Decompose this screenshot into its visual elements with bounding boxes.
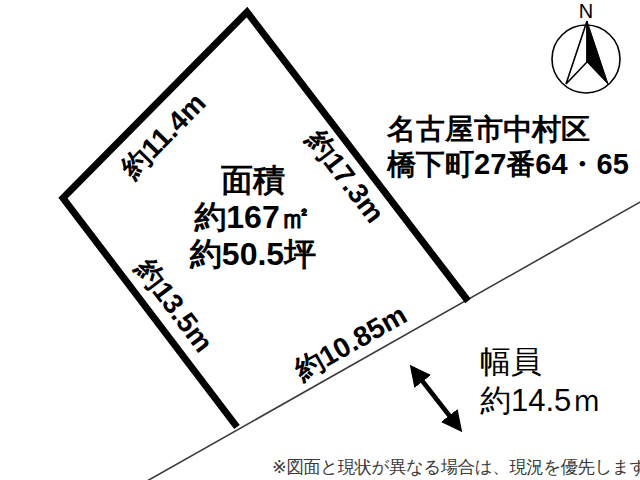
address-block: 名古屋市中村区 橋下町27番64・65 (387, 112, 629, 182)
area-tsubo: 約50.5坪 (190, 236, 316, 273)
area-block: 面積 約167㎡ 約50.5坪 (190, 162, 316, 273)
address-line1: 名古屋市中村区 (387, 112, 629, 147)
land-plot-diagram: N 約11.4m 約17.3m 約13.5m 約10.85m 面積 約167㎡ … (0, 0, 640, 480)
compass-north-label: N (579, 0, 593, 23)
area-square-meters: 約167㎡ (190, 199, 316, 236)
road-width-arrow (413, 369, 459, 428)
road-width-label: 幅員 (480, 342, 602, 381)
address-line2: 橋下町27番64・65 (387, 147, 629, 182)
area-title: 面積 (190, 162, 316, 199)
disclaimer-note: ※図面と現状が異なる場合は、現況を優先します。 (272, 455, 640, 479)
road-width-value: 約14.5ｍ (480, 381, 602, 420)
north-compass-icon (552, 21, 620, 93)
road-width-block: 幅員 約14.5ｍ (480, 342, 602, 420)
